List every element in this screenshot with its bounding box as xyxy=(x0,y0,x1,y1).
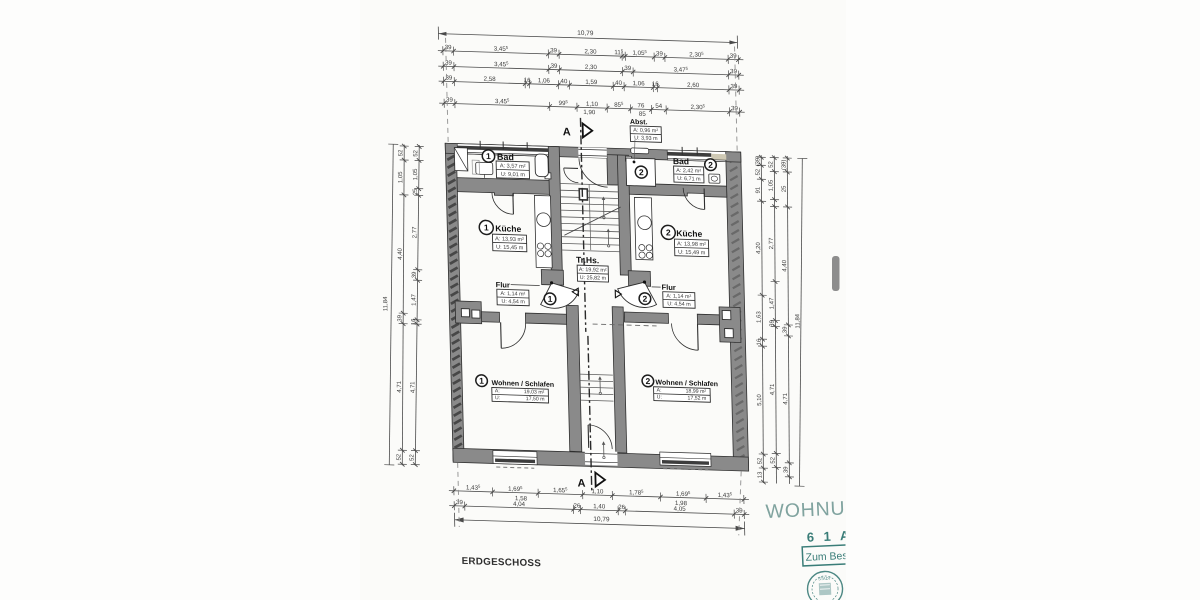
svg-text:4,71: 4,71 xyxy=(410,381,416,394)
svg-text:1: 1 xyxy=(484,222,489,232)
svg-text:1,05: 1,05 xyxy=(413,168,419,181)
svg-text:4,71: 4,71 xyxy=(770,383,776,396)
svg-text:19,03 m²: 19,03 m² xyxy=(524,389,545,396)
svg-text:76: 76 xyxy=(637,102,645,109)
svg-text:2,77: 2,77 xyxy=(769,237,775,250)
svg-text:39: 39 xyxy=(656,50,664,57)
svg-text:U:: U: xyxy=(495,395,500,401)
svg-text:39: 39 xyxy=(730,83,738,90)
svg-text:4,71: 4,71 xyxy=(783,392,789,405)
svg-text:17,52 m: 17,52 m xyxy=(687,395,706,402)
svg-text:52: 52 xyxy=(413,149,419,157)
svg-text:1,90: 1,90 xyxy=(583,109,596,116)
svg-text:A: 3,57 m²: A: 3,57 m² xyxy=(500,163,526,170)
svg-text:U: 15,49 m: U: 15,49 m xyxy=(678,250,706,257)
svg-text:1,47: 1,47 xyxy=(769,297,775,310)
svg-text:52: 52 xyxy=(409,453,415,461)
svg-text:U: 6,71 m: U: 6,71 m xyxy=(677,176,701,183)
svg-text:(39): (39) xyxy=(781,160,787,171)
svg-text:A: A xyxy=(563,126,571,138)
svg-text:39: 39 xyxy=(456,499,464,506)
svg-text:52: 52 xyxy=(757,457,763,465)
svg-text:1,10: 1,10 xyxy=(591,488,604,495)
svg-text:Bad: Bad xyxy=(673,156,689,166)
svg-text:A: 1,14 m²: A: 1,14 m² xyxy=(666,293,691,300)
svg-text:A: A xyxy=(577,477,585,489)
svg-text:A: 2,42 m²: A: 2,42 m² xyxy=(676,168,701,175)
svg-text:54: 54 xyxy=(655,103,663,110)
svg-text:2: 2 xyxy=(645,376,650,386)
svg-text:Küche: Küche xyxy=(676,228,702,239)
svg-text:Flur: Flur xyxy=(496,280,510,289)
svg-text:52: 52 xyxy=(398,149,404,157)
svg-text:2: 2 xyxy=(666,227,671,237)
svg-text:2,58: 2,58 xyxy=(484,76,497,83)
svg-text:U: 4,54 m: U: 4,54 m xyxy=(501,299,525,306)
svg-text:1: 1 xyxy=(548,294,553,304)
svg-text:39: 39 xyxy=(769,319,775,327)
svg-text:40: 40 xyxy=(615,80,623,87)
svg-text:52: 52 xyxy=(755,168,761,176)
svg-text:4,40: 4,40 xyxy=(782,259,788,272)
svg-text:85: 85 xyxy=(639,111,647,118)
svg-text:39: 39 xyxy=(412,271,418,279)
svg-text:2,30: 2,30 xyxy=(585,64,598,71)
svg-text:39: 39 xyxy=(730,68,738,75)
svg-text:1,47: 1,47 xyxy=(411,293,417,306)
svg-text:A: 13,93 m²: A: 13,93 m² xyxy=(495,236,524,243)
svg-text:4,40: 4,40 xyxy=(398,247,404,260)
svg-text:1,05: 1,05 xyxy=(768,179,774,192)
svg-text:52: 52 xyxy=(770,456,776,464)
svg-text:16: 16 xyxy=(411,318,417,326)
svg-text:4,20: 4,20 xyxy=(756,242,762,255)
svg-text:Zum Bes: Zum Bes xyxy=(805,550,847,564)
svg-text:40: 40 xyxy=(560,78,568,85)
svg-text:10,79: 10,79 xyxy=(593,516,610,523)
svg-text:U: 9,01 m: U: 9,01 m xyxy=(501,172,526,179)
svg-text:Küche: Küche xyxy=(495,223,521,234)
svg-text:39: 39 xyxy=(550,63,558,70)
svg-text:U: 3,93 m: U: 3,93 m xyxy=(634,135,658,142)
svg-text:18,99 m²: 18,99 m² xyxy=(686,388,707,395)
svg-text:39: 39 xyxy=(783,326,789,334)
svg-text:2: 2 xyxy=(639,167,644,177)
svg-text:1,58: 1,58 xyxy=(515,495,528,502)
svg-text:A: 0,96 m²: A: 0,96 m² xyxy=(633,128,658,135)
svg-text:STADT: STADT xyxy=(818,576,832,582)
svg-text:1: 1 xyxy=(486,151,491,161)
svg-text:39: 39 xyxy=(397,314,403,322)
svg-text:16: 16 xyxy=(524,77,532,84)
svg-text:(39): (39) xyxy=(755,156,761,167)
svg-text:1,59: 1,59 xyxy=(585,79,598,86)
svg-text:A:: A: xyxy=(495,388,500,394)
svg-text:Abst.: Abst. xyxy=(630,119,648,127)
svg-text:1: 1 xyxy=(479,376,484,386)
svg-text:1,05: 1,05 xyxy=(398,171,404,184)
svg-text:25: 25 xyxy=(782,185,788,193)
svg-text:2,30: 2,30 xyxy=(584,48,597,55)
svg-text:U:: U: xyxy=(657,394,662,400)
svg-text:A: 1,14 m²: A: 1,14 m² xyxy=(500,291,525,298)
svg-text:39: 39 xyxy=(783,466,789,474)
svg-text:91: 91 xyxy=(756,186,762,194)
svg-text:52: 52 xyxy=(768,160,774,168)
svg-text:10,79: 10,79 xyxy=(577,30,594,37)
svg-text:5,10: 5,10 xyxy=(757,393,763,406)
svg-text:1,40: 1,40 xyxy=(593,503,606,510)
svg-text:2,60: 2,60 xyxy=(687,82,700,89)
svg-text:39: 39 xyxy=(731,105,739,112)
svg-text:A: 19,92 m²: A: 19,92 m² xyxy=(579,267,607,274)
svg-text:25: 25 xyxy=(413,188,419,196)
svg-text:2: 2 xyxy=(642,294,647,304)
svg-text:39: 39 xyxy=(550,47,558,54)
svg-text:13: 13 xyxy=(757,471,763,479)
svg-text:1,98: 1,98 xyxy=(675,500,688,507)
svg-text:39: 39 xyxy=(730,53,738,60)
svg-text:Tr.Hs.: Tr.Hs. xyxy=(576,255,599,266)
svg-text:Flur: Flur xyxy=(662,283,676,292)
svg-text:U: 15,45 m: U: 15,45 m xyxy=(496,245,524,252)
svg-text:11,84: 11,84 xyxy=(795,313,801,328)
svg-text:17,50 m: 17,50 m xyxy=(526,396,545,403)
svg-text:1,06: 1,06 xyxy=(538,77,551,84)
svg-text:U: 4,54 m: U: 4,54 m xyxy=(667,301,691,308)
svg-text:A:: A: xyxy=(657,388,662,394)
svg-text:A: 13,98 m²: A: 13,98 m² xyxy=(677,241,706,248)
svg-text:U: 25,82 m: U: 25,82 m xyxy=(580,275,607,282)
svg-text:1,10: 1,10 xyxy=(586,101,599,108)
svg-text:11,84: 11,84 xyxy=(383,296,389,311)
svg-text:26: 26 xyxy=(573,503,581,510)
svg-text:1,63: 1,63 xyxy=(756,310,762,323)
svg-text:16: 16 xyxy=(757,338,763,346)
svg-text:1,06: 1,06 xyxy=(632,80,645,87)
svg-text:52: 52 xyxy=(396,453,402,461)
svg-text:4,71: 4,71 xyxy=(397,380,403,393)
svg-text:2,77: 2,77 xyxy=(412,226,418,239)
svg-text:2: 2 xyxy=(708,160,713,170)
svg-text:26: 26 xyxy=(618,504,626,511)
svg-text:39: 39 xyxy=(624,65,632,72)
svg-text:16: 16 xyxy=(652,81,660,88)
